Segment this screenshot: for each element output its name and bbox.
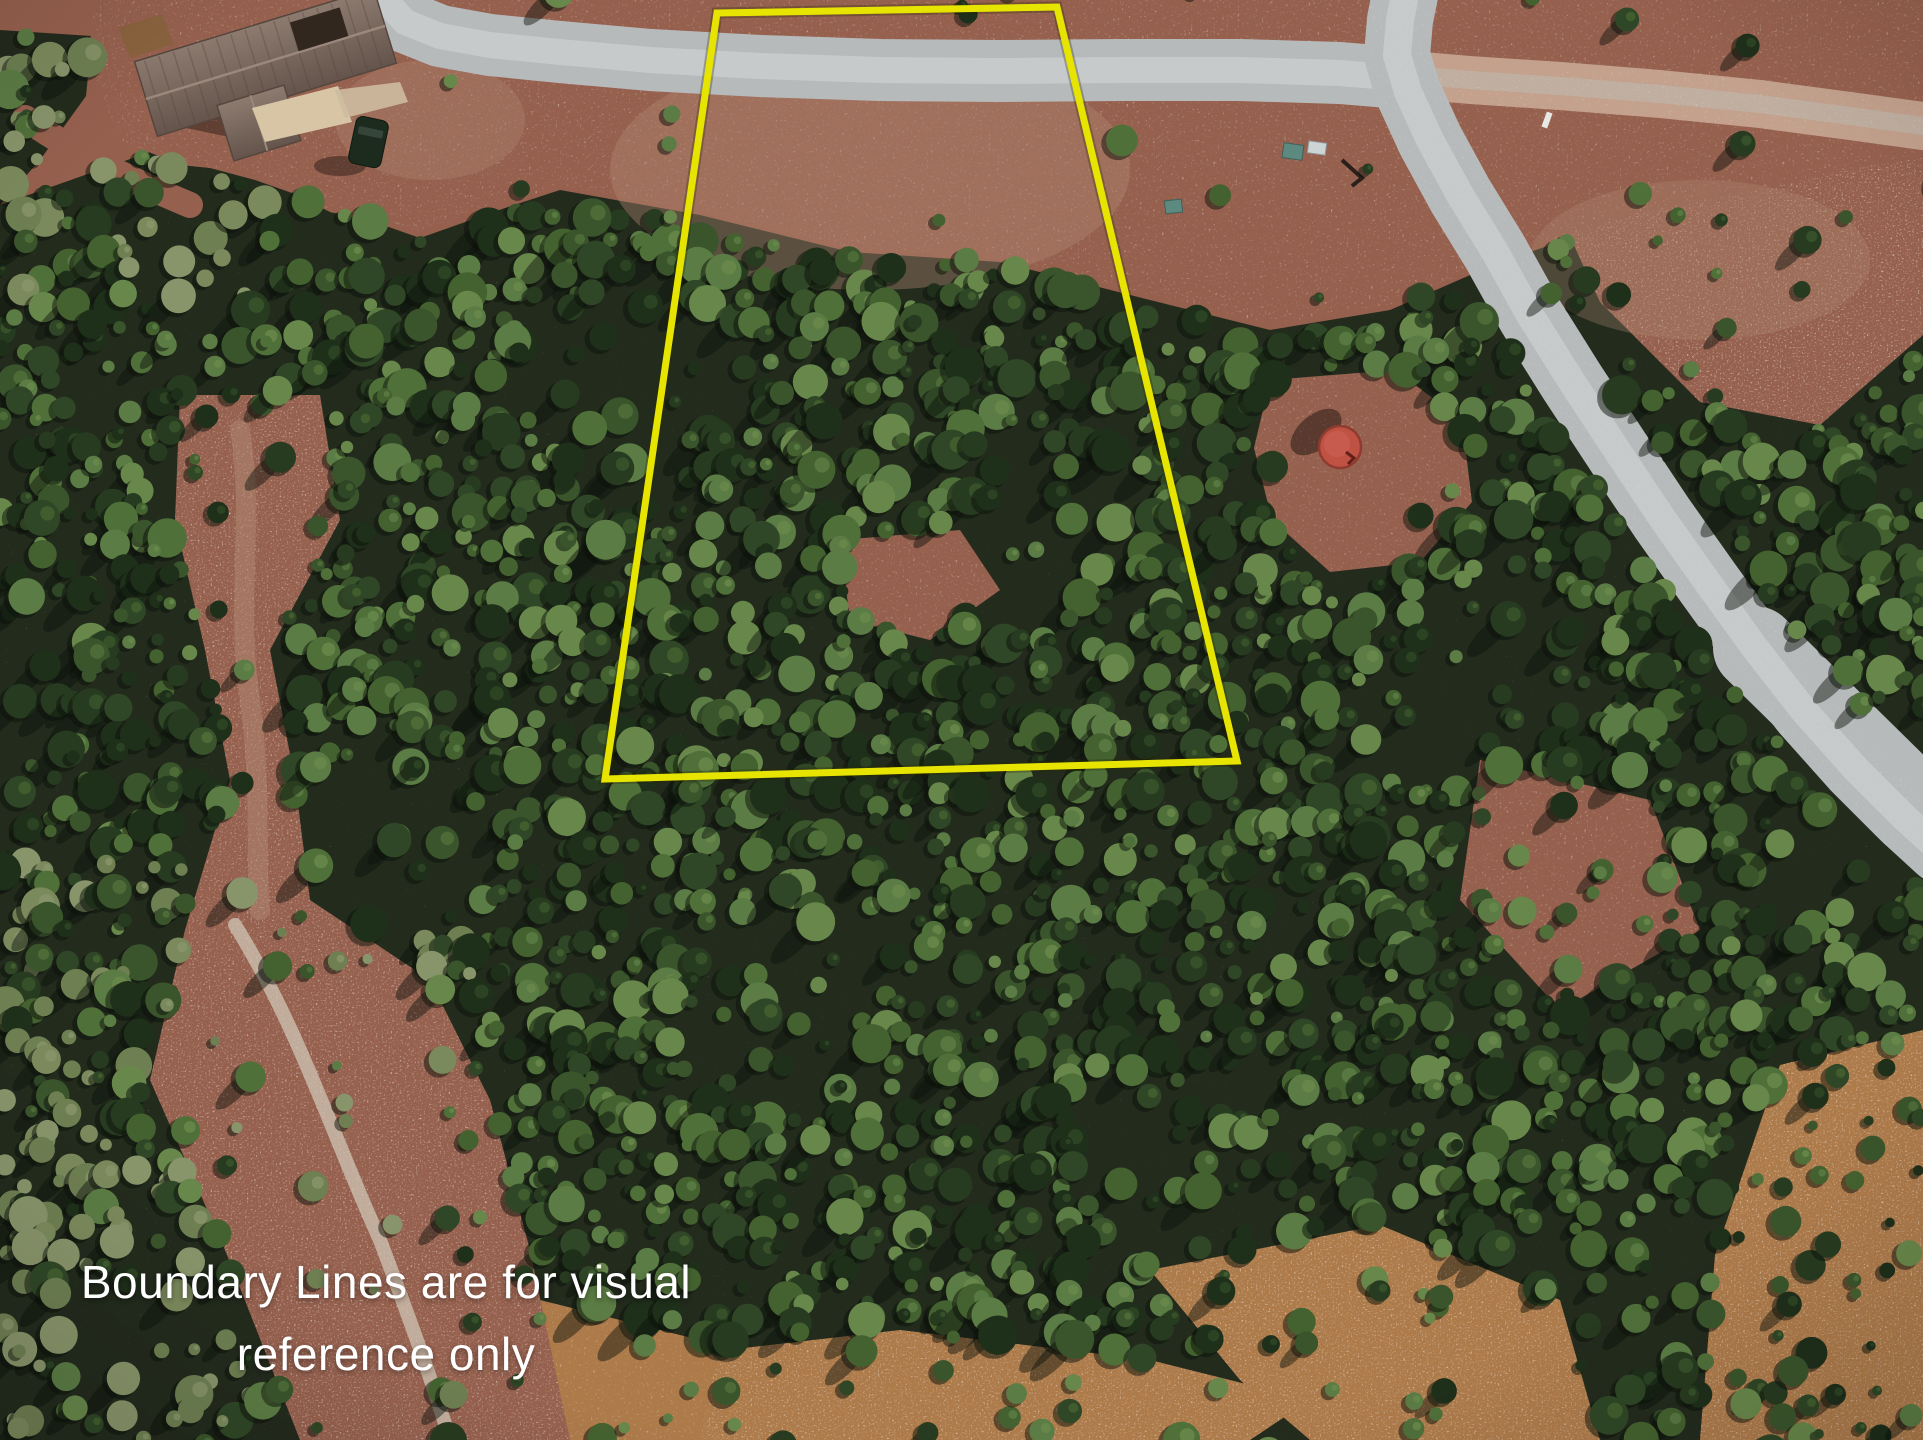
boundary-disclaimer-text: Boundary Lines are for visual reference …: [65, 1246, 707, 1390]
storage-shed-teal: [1164, 199, 1182, 214]
utility-trailer-white: [1307, 141, 1326, 155]
metal-shed-teal: [1282, 143, 1304, 161]
disclaimer-line-1: Boundary Lines are for visual: [65, 1246, 707, 1318]
aerial-drone-photo: Boundary Lines are for visual reference …: [0, 0, 1923, 1440]
disclaimer-line-2: reference only: [65, 1318, 707, 1390]
aerial-photo-scene: [0, 0, 1923, 1440]
